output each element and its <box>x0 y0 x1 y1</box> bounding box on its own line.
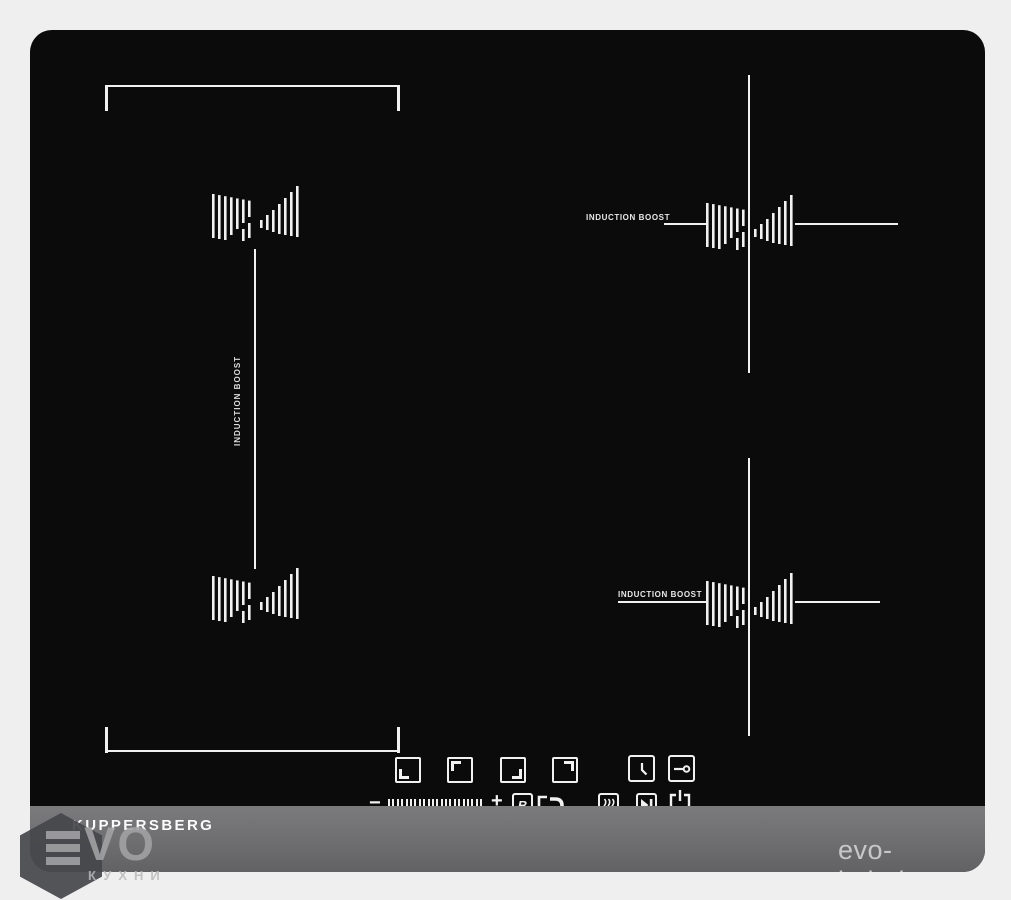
zone-select-key-3 <box>500 757 526 783</box>
zone-corner-mark-top-left <box>451 761 461 771</box>
zone-select-key-1 <box>395 757 421 783</box>
watermark-evo-text: VO <box>84 820 156 867</box>
burner-hatch-marker-left-bottom <box>210 562 300 634</box>
evo-e-bar <box>46 844 80 852</box>
right-top-zone-hline-right <box>795 223 898 225</box>
evo-e-bar <box>46 831 80 839</box>
watermark-caption: КУХНИ <box>88 868 167 883</box>
site-url-text: evo-kuhni.ru <box>838 835 985 872</box>
right-top-zone-boost-label: INDUCTION BOOST <box>586 213 662 222</box>
timer-key <box>628 755 655 782</box>
right-bottom-zone-boost-label: INDUCTION BOOST <box>618 590 702 599</box>
right-bottom-zone-hline-left <box>618 601 706 603</box>
left-zone-top-bracket-tick-right <box>397 85 400 111</box>
zone-corner-mark-bottom-right <box>512 769 522 779</box>
watermark-evo-e-bars <box>46 831 80 865</box>
product-photo-page: { "product": { "brand_logo": "KUPPERSBER… <box>0 0 1011 900</box>
zone-corner-mark-bottom-left <box>399 769 409 779</box>
burner-hatch-marker-right-bottom <box>704 567 794 639</box>
key-icon <box>673 764 691 774</box>
zone-corner-mark-top-right <box>564 761 574 771</box>
zone-select-key-4 <box>552 757 578 783</box>
induction-hob-glass: INDUCTION BOOST INDUCTION BOOST INDUCTIO… <box>30 30 985 872</box>
clock-icon <box>634 761 650 777</box>
child-lock-key <box>668 755 695 782</box>
evo-e-bar <box>46 857 80 865</box>
left-zone-bottom-bracket-tick-right <box>397 727 400 753</box>
left-zone-bottom-bracket-tick-left <box>105 727 108 753</box>
left-zone-bottom-bracket-line <box>105 750 400 752</box>
left-zone-boost-label: INDUCTION BOOST <box>233 342 242 460</box>
left-zone-top-bracket-tick-left <box>105 85 108 111</box>
burner-hatch-marker-left-top <box>210 180 300 252</box>
right-bottom-zone-hline-right <box>795 601 880 603</box>
left-zone-top-bracket-line <box>105 85 400 87</box>
left-zone-connector-line <box>254 249 256 569</box>
burner-hatch-marker-right-top <box>704 189 794 261</box>
zone-select-key-2 <box>447 757 473 783</box>
right-top-zone-hline-left <box>664 223 706 225</box>
